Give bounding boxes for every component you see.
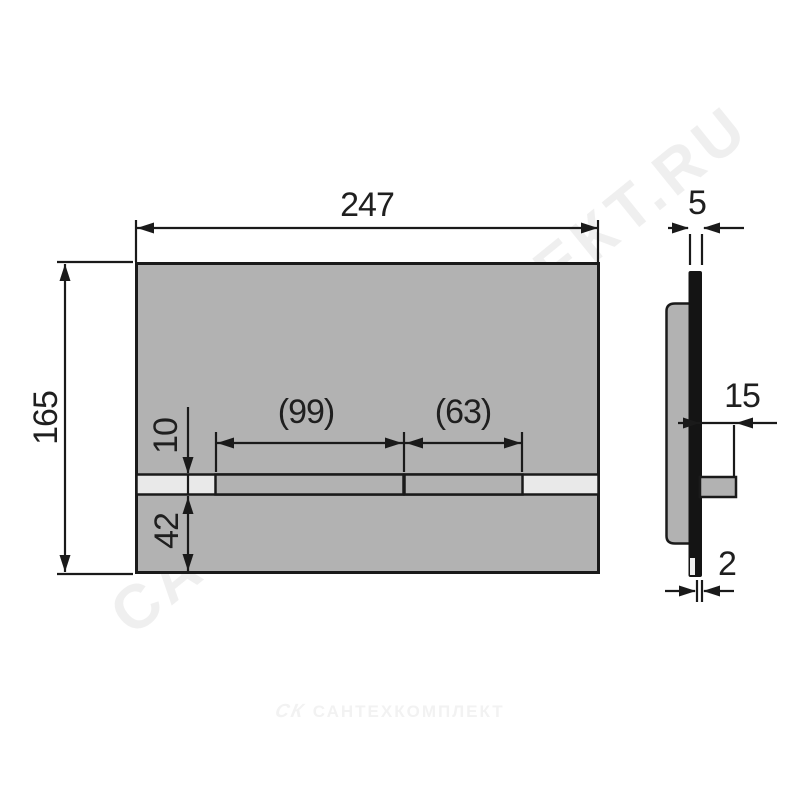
arrow-left-icon (137, 223, 154, 234)
arrow-right-icon (672, 223, 689, 234)
watermark-bottom: СК САНТЕХКОМПЛЕКТ (275, 701, 504, 723)
dim-line-width (136, 220, 598, 262)
arrow-left-icon (703, 586, 720, 597)
dim-label-depth: 15 (724, 379, 760, 413)
technical-drawing-flush-plate: САНТЕХКОМПЛЕКТ.RU (0, 0, 800, 800)
arrow-left-icon (736, 418, 753, 429)
dim-label-small-button: (63) (435, 395, 491, 429)
arrow-up-icon (60, 264, 71, 281)
arrow-left-icon (703, 223, 720, 234)
dim-label-large-button: (99) (278, 395, 334, 429)
flush-button-large (216, 475, 404, 495)
front-view (137, 264, 599, 573)
watermark-logo-icon: СК (273, 701, 307, 723)
dim-label-strip-height: 10 (149, 418, 183, 454)
drawing-canvas (0, 0, 800, 800)
dim-label-height: 165 (29, 391, 63, 445)
plate-front (137, 264, 599, 573)
dim-label-panel-thickness: 2 (718, 547, 736, 581)
dim-label-thickness: 5 (688, 186, 706, 220)
dim-line-panel (665, 580, 734, 602)
dim-line-thickness (668, 228, 744, 265)
arrow-down-icon (60, 555, 71, 572)
dim-label-bottom-offset: 42 (150, 513, 184, 549)
button-protrusion-side (700, 477, 736, 497)
flush-button-small (405, 475, 523, 495)
dim-line-height (57, 262, 133, 574)
watermark-text: САНТЕХКОМПЛЕКТ (313, 702, 505, 722)
arrow-right-icon (581, 223, 598, 234)
arrow-right-icon (679, 586, 696, 597)
dim-label-width: 247 (340, 188, 394, 222)
plate-layer-notch (690, 558, 695, 575)
